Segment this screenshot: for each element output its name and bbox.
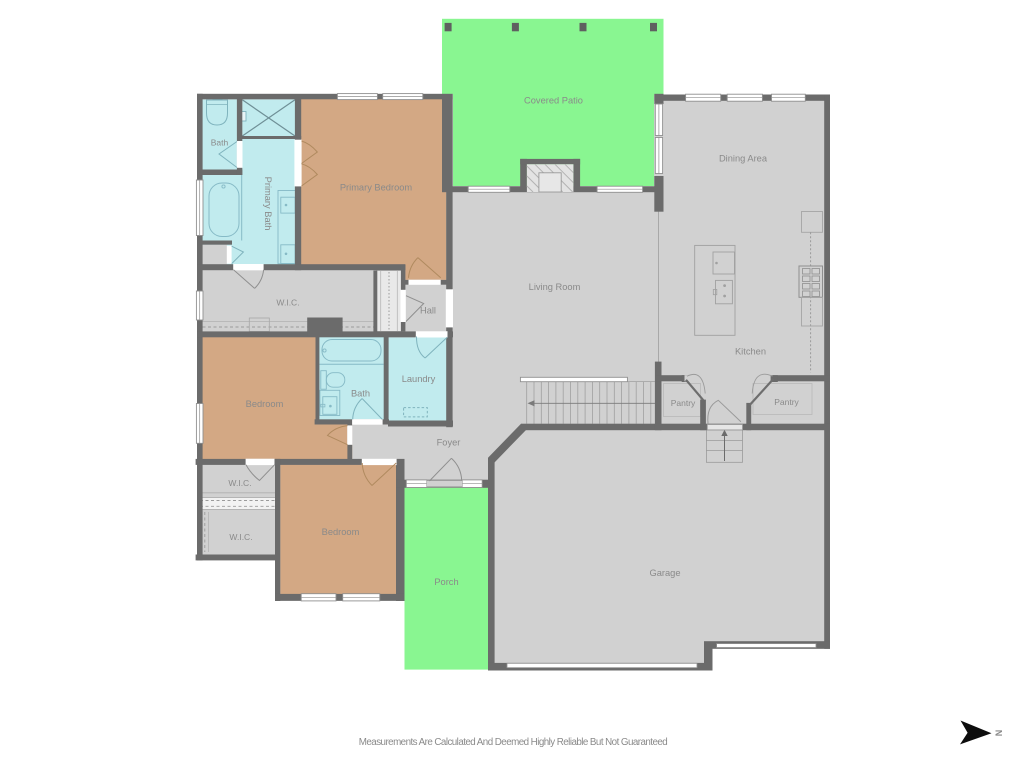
svg-text:Hall: Hall: [420, 306, 436, 316]
svg-text:Living Room: Living Room: [529, 282, 581, 292]
svg-text:Porch: Porch: [434, 577, 458, 587]
svg-text:N: N: [994, 730, 1004, 737]
svg-text:Bedroom: Bedroom: [322, 527, 360, 537]
svg-text:W.I.C.: W.I.C.: [229, 532, 252, 542]
svg-text:Primary Bath: Primary Bath: [263, 177, 273, 231]
svg-text:W.I.C.: W.I.C.: [276, 298, 299, 308]
svg-text:W.I.C.: W.I.C.: [228, 478, 251, 488]
svg-text:Covered Patio: Covered Patio: [524, 96, 583, 106]
svg-text:Kitchen: Kitchen: [735, 347, 766, 357]
svg-text:Bath: Bath: [351, 389, 370, 399]
svg-text:Garage: Garage: [649, 568, 680, 578]
svg-text:Pantry: Pantry: [671, 398, 696, 408]
svg-text:Measurements Are Calculated An: Measurements Are Calculated And Deemed H…: [359, 737, 667, 748]
svg-text:Dining Area: Dining Area: [719, 154, 768, 164]
svg-text:Bedroom: Bedroom: [246, 399, 284, 409]
svg-text:Laundry: Laundry: [402, 374, 436, 384]
svg-text:Bath: Bath: [211, 138, 229, 148]
svg-text:Primary Bedroom: Primary Bedroom: [340, 183, 413, 193]
svg-text:Pantry: Pantry: [774, 397, 799, 407]
svg-text:Foyer: Foyer: [437, 438, 461, 448]
